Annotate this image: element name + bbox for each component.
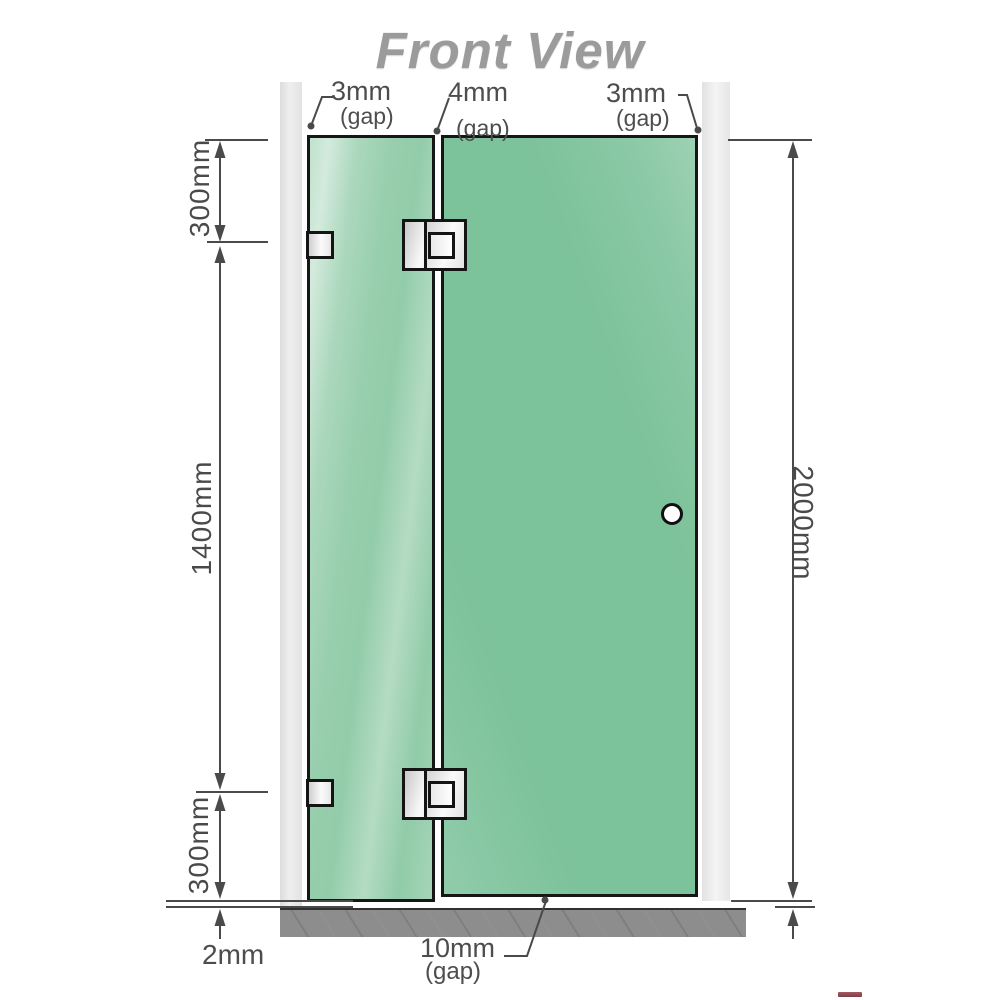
door-handle-knob: [661, 503, 683, 525]
gap-label-bottom-door: 10mm (gap): [420, 936, 495, 984]
gap-value: 3mm: [331, 79, 394, 104]
gap-label-top-right: 3mm (gap): [606, 81, 670, 131]
gap-unit: (gap): [340, 104, 394, 129]
hinge-tongue: [428, 232, 455, 259]
dimension-label-2000mm: 2000mm: [788, 453, 818, 593]
gap-label-top-center: 4mm (gap): [448, 80, 510, 144]
gap-value: 10mm: [420, 936, 495, 960]
left-wall-strip: [280, 82, 302, 908]
gap-unit: (gap): [456, 116, 510, 141]
dimension-label-300mm-top: 300mm: [185, 133, 215, 243]
right-wall-strip: [702, 82, 730, 901]
gap-value: 3mm: [606, 81, 670, 106]
wall-bracket-top: [306, 231, 334, 259]
door-hinge-top: [402, 219, 467, 271]
wall-bracket-bottom: [306, 779, 334, 807]
diagram-title: Front View: [330, 22, 690, 80]
front-view-diagram: Front View: [0, 0, 1000, 1000]
gap-unit: (gap): [425, 960, 495, 984]
hinge-tongue: [428, 781, 455, 808]
door-hinge-bottom: [402, 768, 467, 820]
floor-base: [280, 908, 746, 937]
gap-unit: (gap): [616, 106, 670, 131]
gap-value: 4mm: [448, 80, 510, 105]
gap-label-top-left: 3mm (gap): [331, 79, 394, 129]
dimension-label-1400mm: 1400mm: [187, 453, 217, 583]
door-glass-panel: [441, 135, 698, 897]
floor-clearance-label: 2mm: [202, 939, 264, 971]
dimension-label-300mm-bottom: 300mm: [184, 790, 214, 900]
corner-logo-fragment: [838, 992, 862, 997]
